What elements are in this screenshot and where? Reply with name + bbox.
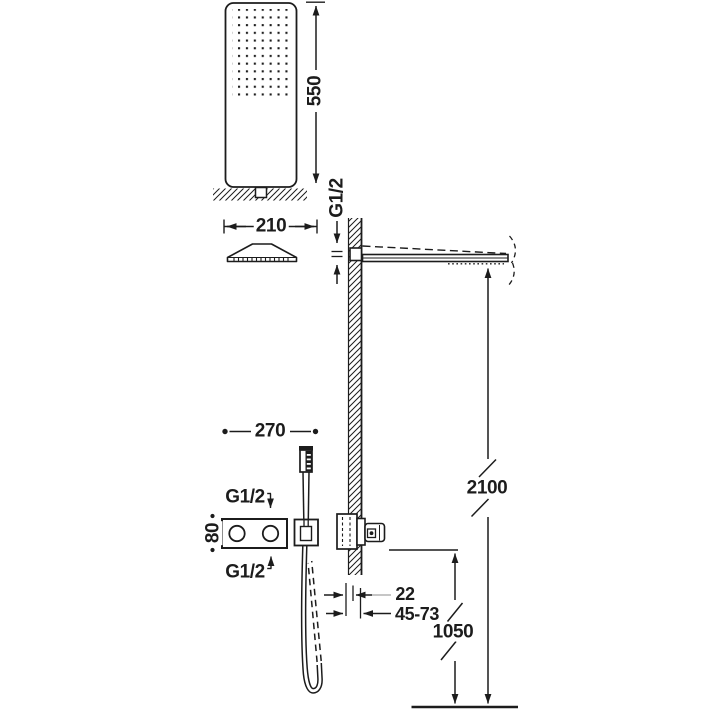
dim-label-controls-span: 270 xyxy=(253,422,288,441)
dim-label-head-width: 210 xyxy=(254,217,289,236)
diagram-linework xyxy=(0,0,720,720)
left-knob xyxy=(229,526,244,541)
label-inlet-bottom-thread: G1/2 xyxy=(223,563,267,582)
dim-22-45-73-lines xyxy=(324,583,391,619)
dim-label-wall-offset: 22 xyxy=(393,585,416,603)
dim-label-controls-height: 80 xyxy=(204,521,223,545)
arm-edge-arc xyxy=(508,263,515,287)
hand-shower-holder xyxy=(295,520,319,546)
shower-hose xyxy=(302,546,322,693)
shower-arm xyxy=(350,236,515,287)
label-inlet-top-thread: G1/2 xyxy=(223,488,267,507)
dim-80-end-dot xyxy=(210,548,214,552)
dim-label-head-height: 550 xyxy=(306,74,325,109)
hand-shower xyxy=(295,446,319,546)
shower-head-side-view xyxy=(228,244,297,262)
head-connector-tab xyxy=(256,188,267,198)
outlet-recessed-box xyxy=(337,514,357,549)
wall-outlet xyxy=(337,514,385,549)
outlet-flange xyxy=(357,519,365,546)
dim-label-outlet-height: 1050 xyxy=(431,623,476,642)
dim-label-arm-height: 2100 xyxy=(465,479,510,498)
dim-label-depth-range: 45-73 xyxy=(393,605,441,623)
installation-diagram: 550 210 G1/2 2100 270 G1/2 80 G1/2 22 45… xyxy=(0,0,720,720)
arm-wall-connector xyxy=(350,248,362,261)
dim-80-end-dot xyxy=(210,514,214,518)
shower-head-front-view xyxy=(213,3,307,201)
label-arm-thread: G1/2 xyxy=(328,176,347,220)
arm-edge-arc xyxy=(510,236,516,263)
arm-thread-callout xyxy=(332,221,343,284)
right-knob xyxy=(263,526,278,541)
